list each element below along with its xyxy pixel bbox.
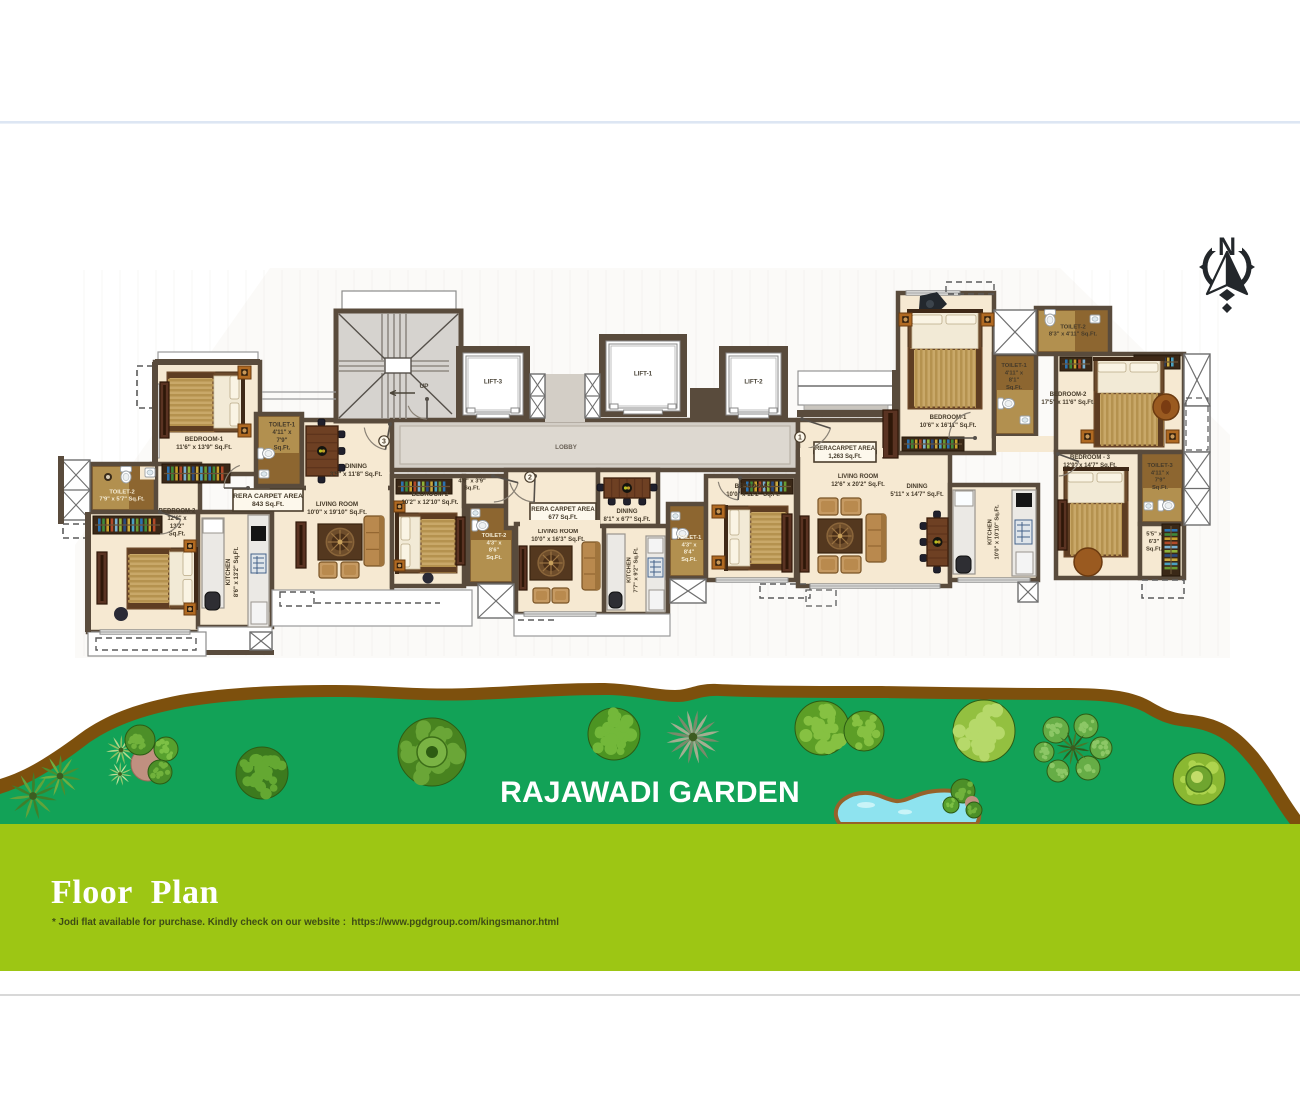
svg-text:4'3" x: 4'3" x: [682, 542, 698, 548]
svg-text:BEDROOM-2: BEDROOM-2: [412, 492, 449, 498]
svg-text:8'3" x 4'11" Sq.Ft.: 8'3" x 4'11" Sq.Ft.: [1049, 332, 1098, 338]
svg-text:TOILET-1: TOILET-1: [1001, 363, 1027, 369]
svg-text:17'5" x 11'6" Sq.Ft.: 17'5" x 11'6" Sq.Ft.: [1041, 400, 1095, 406]
svg-text:2: 2: [528, 475, 532, 482]
svg-text:DINING: DINING: [345, 463, 367, 470]
svg-text:4'3" x: 4'3" x: [487, 540, 503, 546]
svg-text:4'11" x: 4'11" x: [1151, 470, 1170, 476]
svg-text:10'0" x 10'10" Sq.Ft.: 10'0" x 10'10" Sq.Ft.: [995, 504, 1001, 559]
svg-text:TOILET-2: TOILET-2: [482, 533, 506, 539]
svg-text:10'0" x 19'10" Sq.Ft.: 10'0" x 19'10" Sq.Ft.: [307, 509, 367, 516]
svg-text:LIVING ROOM: LIVING ROOM: [316, 501, 358, 508]
svg-text:12'6" x 20'2" Sq.Ft.: 12'6" x 20'2" Sq.Ft.: [831, 482, 885, 488]
svg-text:Sq.Ft.: Sq.Ft.: [486, 555, 502, 561]
svg-text:TOILET-2: TOILET-2: [1060, 324, 1085, 330]
svg-text:7'9": 7'9": [1155, 478, 1166, 484]
svg-text:8'6": 8'6": [489, 548, 500, 554]
svg-text:1,263 Sq.Ft.: 1,263 Sq.Ft.: [828, 454, 862, 460]
svg-text:5'5" x: 5'5" x: [1146, 532, 1162, 538]
svg-text:10'0" x 16'3" Sq.Ft.: 10'0" x 16'3" Sq.Ft.: [531, 537, 585, 543]
svg-text:8'6" x 13'2" Sq.Ft.: 8'6" x 13'2" Sq.Ft.: [234, 547, 240, 598]
svg-text:TOILET-1: TOILET-1: [677, 535, 701, 541]
svg-text:UP: UP: [419, 383, 429, 390]
svg-text:LIFT-3: LIFT-3: [484, 379, 503, 386]
svg-text:BEDROOM-2: BEDROOM-2: [1050, 392, 1087, 398]
svg-text:KITCHEN: KITCHEN: [987, 519, 993, 545]
svg-text:7'9": 7'9": [277, 438, 288, 444]
svg-text:Floor Plan: Floor Plan: [51, 874, 219, 911]
svg-text:11'6" x 13'9" Sq.Ft.: 11'6" x 13'9" Sq.Ft.: [176, 444, 232, 451]
svg-text:BEDROOM-1: BEDROOM-1: [735, 484, 772, 490]
svg-text:1: 1: [798, 435, 802, 442]
svg-text:Sq.Ft.: Sq.Ft.: [681, 557, 697, 563]
svg-text:12'8" x: 12'8" x: [167, 516, 187, 522]
svg-text:RERA CARPET AREA: RERA CARPET AREA: [531, 506, 595, 513]
svg-text:Sq.Ft.: Sq.Ft.: [274, 445, 291, 451]
svg-text:RERA CARPET AREA: RERA CARPET AREA: [233, 493, 303, 500]
svg-text:4'9" x 3'9": 4'9" x 3'9": [458, 478, 486, 484]
svg-text:* Jodi flat available for purc: * Jodi flat available for purchase. Kind…: [52, 917, 559, 928]
svg-text:3'5" x 11'8" Sq.Ft.: 3'5" x 11'8" Sq.Ft.: [330, 471, 383, 478]
svg-text:KITCHEN: KITCHEN: [226, 559, 232, 586]
svg-text:LIFT-2: LIFT-2: [744, 379, 763, 386]
svg-text:TOILET-2: TOILET-2: [109, 489, 134, 495]
svg-text:7'9" x 5'7" Sq.Ft.: 7'9" x 5'7" Sq.Ft.: [99, 497, 145, 503]
svg-text:10'6" x 16'11" Sq.Ft.: 10'6" x 16'11" Sq.Ft.: [920, 423, 977, 429]
svg-text:10'2" x 12'10" Sq.Ft.: 10'2" x 12'10" Sq.Ft.: [402, 500, 459, 506]
svg-text:7'7" x 9'2" Sq.Ft.: 7'7" x 9'2" Sq.Ft.: [634, 547, 640, 593]
svg-text:6'3": 6'3": [1149, 539, 1160, 545]
svg-text:Sq.Ft.: Sq.Ft.: [1146, 546, 1162, 552]
svg-text:TOILET-1: TOILET-1: [269, 423, 296, 429]
svg-text:LOBBY: LOBBY: [555, 444, 578, 451]
svg-text:Sq.Ft.: Sq.Ft.: [1152, 485, 1168, 491]
svg-text:8'1": 8'1": [1009, 378, 1020, 384]
svg-text:4'11" x: 4'11" x: [1005, 370, 1024, 376]
svg-text:4'11" x: 4'11" x: [273, 430, 293, 436]
svg-text:DINING: DINING: [617, 509, 638, 515]
svg-text:LIVING ROOM: LIVING ROOM: [838, 474, 878, 480]
svg-text:KITCHEN: KITCHEN: [626, 557, 632, 583]
svg-text:Sq.Ft.: Sq.Ft.: [1006, 385, 1022, 391]
svg-text:RAJAWADI GARDEN: RAJAWADI GARDEN: [500, 776, 800, 809]
svg-text:RERACARPET AREA: RERACARPET AREA: [815, 446, 876, 452]
svg-text:8'4": 8'4": [684, 550, 695, 556]
svg-text:8'1" x 6'7" Sq.Ft.: 8'1" x 6'7" Sq.Ft.: [604, 517, 651, 523]
svg-text:Sq.Ft.: Sq.Ft.: [169, 531, 186, 537]
svg-text:Sq.Ft.: Sq.Ft.: [464, 486, 480, 492]
svg-text:DINING: DINING: [907, 484, 928, 490]
svg-text:843 Sq.Ft.: 843 Sq.Ft.: [252, 501, 284, 508]
svg-text:3: 3: [382, 439, 386, 446]
svg-text:10'0" x 12'2" Sq.Ft.: 10'0" x 12'2" Sq.Ft.: [726, 492, 780, 498]
svg-text:LIFT-1: LIFT-1: [634, 371, 653, 378]
svg-text:5'11" x 14'7" Sq.Ft.: 5'11" x 14'7" Sq.Ft.: [890, 492, 944, 498]
svg-text:677 Sq.Ft.: 677 Sq.Ft.: [548, 514, 578, 521]
svg-text:LIVING ROOM: LIVING ROOM: [538, 529, 578, 535]
svg-text:TOILET-3: TOILET-3: [1147, 463, 1173, 469]
svg-text:BEDROOM-1: BEDROOM-1: [185, 436, 224, 443]
